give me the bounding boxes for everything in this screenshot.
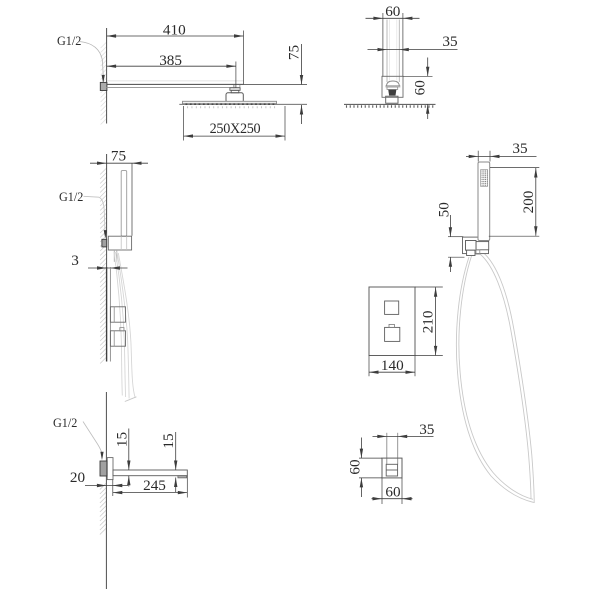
- svg-text:60: 60: [385, 483, 401, 500]
- svg-text:G1/2: G1/2: [57, 34, 81, 48]
- svg-text:35: 35: [442, 33, 457, 50]
- svg-text:35: 35: [512, 140, 527, 157]
- svg-text:50: 50: [435, 202, 452, 218]
- svg-text:15: 15: [113, 432, 130, 447]
- svg-text:210: 210: [420, 310, 437, 333]
- svg-text:G1/2: G1/2: [59, 190, 83, 204]
- svg-text:385: 385: [159, 52, 182, 69]
- svg-text:35: 35: [419, 421, 434, 438]
- svg-text:60: 60: [347, 459, 364, 475]
- svg-text:3: 3: [71, 252, 79, 269]
- svg-text:60: 60: [385, 3, 401, 20]
- svg-text:75: 75: [111, 148, 126, 165]
- svg-text:200: 200: [520, 190, 537, 213]
- svg-text:410: 410: [163, 22, 186, 39]
- svg-text:245: 245: [143, 477, 166, 494]
- svg-text:15: 15: [160, 433, 177, 448]
- svg-text:250X250: 250X250: [210, 121, 261, 137]
- svg-text:140: 140: [381, 357, 404, 374]
- svg-text:60: 60: [412, 80, 429, 96]
- svg-text:20: 20: [70, 469, 86, 486]
- svg-text:G1/2: G1/2: [53, 416, 77, 430]
- svg-text:75: 75: [285, 45, 302, 60]
